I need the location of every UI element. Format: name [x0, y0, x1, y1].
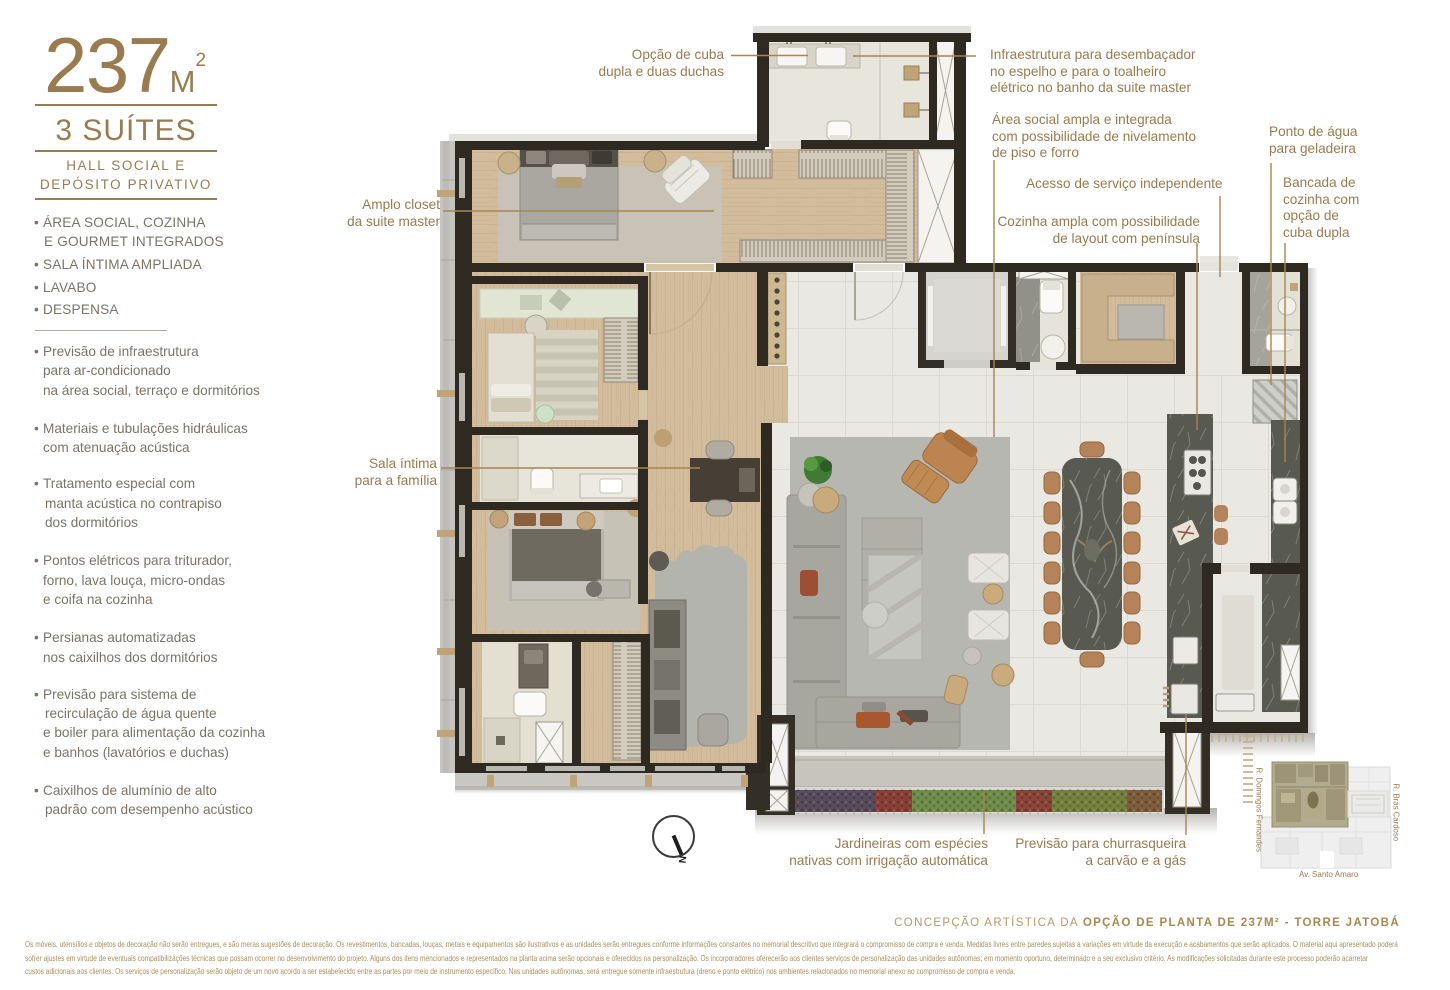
svg-text:N: N: [676, 855, 688, 863]
